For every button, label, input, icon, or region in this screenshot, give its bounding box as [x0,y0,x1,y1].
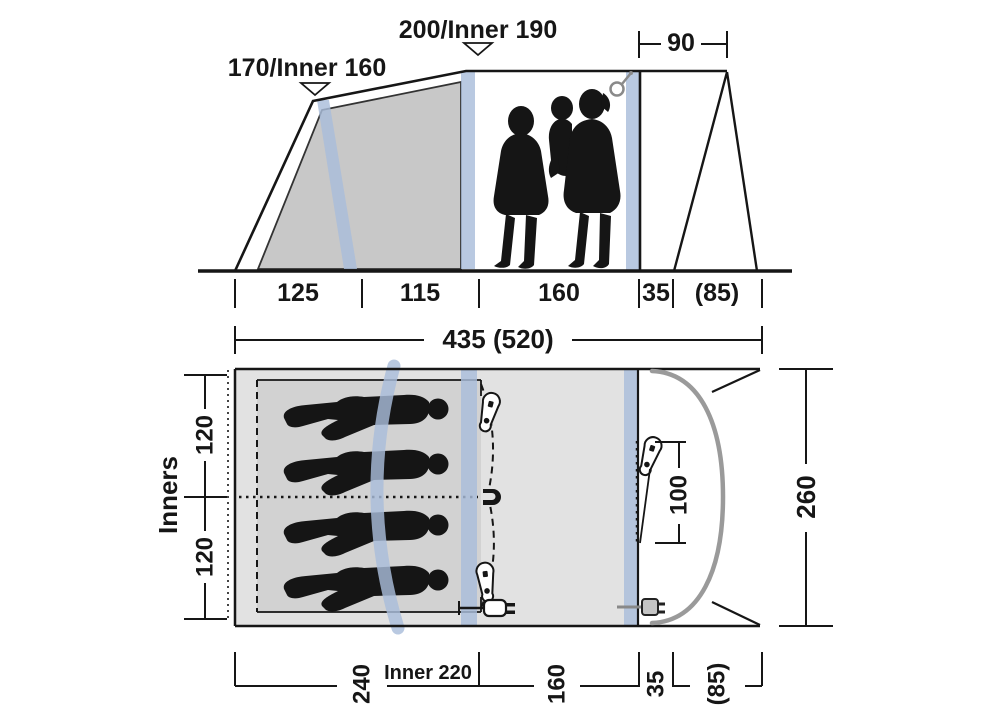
peak-left-label: 170/Inner 160 [228,54,386,82]
tent-dimension-sheet: 170/Inner 160 200/Inner 190 90 125 115 1… [0,0,1000,720]
segment-value: 125 [277,279,319,307]
total-length-value: 435 (520) [442,324,553,354]
segment-value: 115 [400,279,440,307]
tent-dimensions-diagram: 170/Inner 160 200/Inner 190 90 125 115 1… [0,0,1000,720]
inner-depth-label: Inner 220 [384,662,472,684]
segment-value: (85) [695,279,739,307]
canopy-depth-value: 90 [667,29,695,57]
inners-label: Inners [153,456,183,534]
inner-width-value: 120 [192,537,219,577]
door-width-value: 100 [666,475,693,515]
tent-width-value: 260 [791,475,821,518]
depth-segment-value: 160 [544,664,571,704]
pole-band-front [626,72,639,271]
depth-segment-value: 35 [643,671,670,698]
segment-value: 160 [538,279,580,307]
pole-band-front-plan [624,369,637,626]
pole-band-middle [461,72,475,269]
pole-band-middle-plan [461,369,477,626]
depth-segment-value: (85) [704,663,731,706]
inner-width-value: 120 [192,415,219,455]
peak-right-label: 200/Inner 190 [399,16,557,44]
depth-segment-value: 240 [349,664,376,704]
segment-value: 35 [642,279,670,307]
